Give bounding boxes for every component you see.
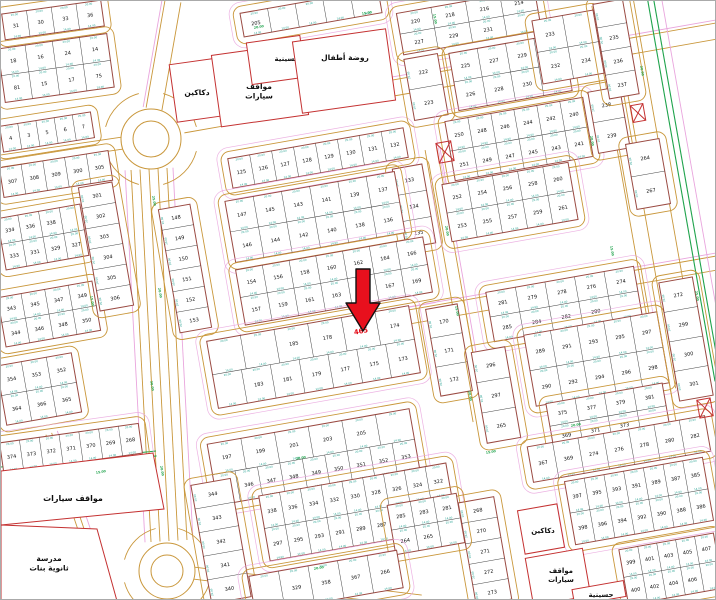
street-width-label: 20.00 [444, 226, 450, 237]
road-edge-line [146, 1, 165, 108]
plot-number: 75 [95, 73, 102, 80]
facility-label: مدرسة [36, 554, 62, 563]
plot-number: 24 [64, 50, 71, 57]
street-width-label: 20.00 [159, 466, 165, 477]
street-width-label: 15.00 [486, 449, 497, 455]
city-block: 1820.0014.001620.0014.002420.0014.001420… [1, 26, 122, 111]
city-block: 14820.0014920.0015020.0015120.0015220.00… [150, 196, 219, 341]
facility-label: مواقف [549, 567, 573, 575]
plot-number: 81 [14, 85, 21, 92]
block-boundary [240, 1, 382, 37]
plot-number: 16 [37, 54, 44, 61]
city-block: 29620.0029720.0026520.00 [463, 339, 529, 452]
facility-label: سيارات [245, 92, 273, 101]
facility-label: حسينية [589, 591, 614, 599]
roundabout-island [133, 121, 169, 157]
facility-boundary [292, 29, 395, 113]
roundabout [124, 528, 209, 600]
street-width-label: 20.00 [639, 66, 645, 77]
facility-label: دكاكين [184, 88, 209, 97]
city-block: 17020.0017120.0017220.00 [417, 296, 480, 404]
facility-label: روضة أطفال [321, 52, 369, 62]
street-width-label: 25.00 [151, 196, 157, 207]
city-block: 420.0014.00320.0014.00520.0014.00620.001… [1, 104, 102, 160]
city-block: 35420.0014.0035320.0014.0035220.0014.003… [1, 345, 90, 434]
plot-number: 33 [62, 16, 69, 23]
plot-number: 18 [10, 58, 17, 65]
facility-label: مواقف سيارات [43, 494, 103, 503]
road-edge-line [143, 1, 162, 107]
facility-label: ثانوية بنات [29, 564, 69, 573]
city-block: 34320.0014.0034520.0014.0034720.0014.003… [1, 273, 109, 355]
plot-number: 14 [92, 46, 99, 53]
block-boundary [1, 281, 101, 347]
facility-label: سيارات [548, 576, 574, 584]
plot-number: 17 [68, 77, 75, 84]
street-width-label: 30.00 [149, 381, 155, 392]
facility-plot: روضة أطفال [292, 29, 395, 113]
utility-x-marker [697, 398, 713, 418]
street-width-label: 20.00 [467, 391, 473, 402]
roundabout-island [151, 555, 183, 587]
street-width-label: 20.00 [157, 288, 163, 299]
plot-number: 31 [12, 23, 19, 30]
plot-number: 15 [41, 81, 48, 88]
plat-map-canvas: 3120.0014.003020.0014.003320.0014.003620… [0, 0, 716, 600]
subdivision-map: 3120.0014.003020.0014.003320.0014.003620… [1, 1, 716, 600]
plot-number: 30 [37, 19, 44, 26]
city-block: 26820.0027020.0027120.0027220.0027320.00 [450, 489, 520, 600]
facility-label: دكاكين [531, 527, 555, 535]
street-width-label: 15.00 [609, 246, 615, 257]
plot-number: 36 [87, 12, 94, 19]
utility-x-marker [630, 104, 646, 123]
facility-plot: دكاكين [517, 504, 564, 554]
facility-plot: مدرسةثانوية بنات [1, 525, 117, 600]
